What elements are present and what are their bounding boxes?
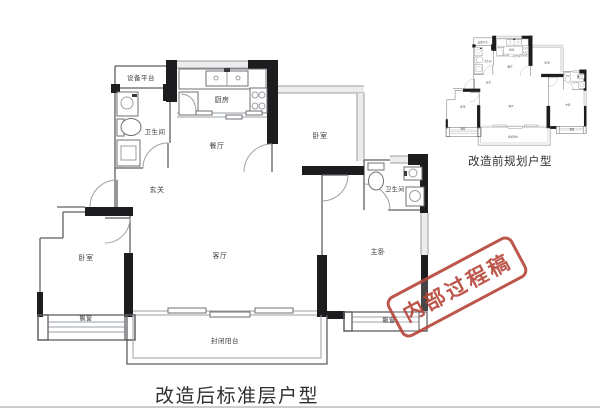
thin-walls — [40, 66, 428, 315]
thick-walls — [37, 60, 428, 319]
balcony-walls — [127, 308, 327, 364]
window-bands — [177, 61, 428, 255]
bathroom-left-fixtures — [117, 92, 141, 166]
small-floorplan-drawing — [446, 36, 587, 145]
small-plan-caption: 改造前规划户型 — [468, 153, 552, 169]
main-plan-caption: 改造后标准层户型 — [155, 381, 319, 408]
floorplan-canvas — [0, 0, 600, 413]
kitchen-fixtures — [179, 68, 267, 119]
floorplan-screenshot: 设备平台 卫生间 厨房 餐厅 卧室 卫生间 玄关 卧室 客厅 主卧 飘窗 飘窗 … — [0, 0, 600, 413]
main-floorplan-drawing — [37, 60, 428, 364]
bottom-divider — [0, 406, 600, 408]
bathroom-right-fixtures — [368, 163, 424, 206]
bay-window-left — [38, 315, 135, 340]
